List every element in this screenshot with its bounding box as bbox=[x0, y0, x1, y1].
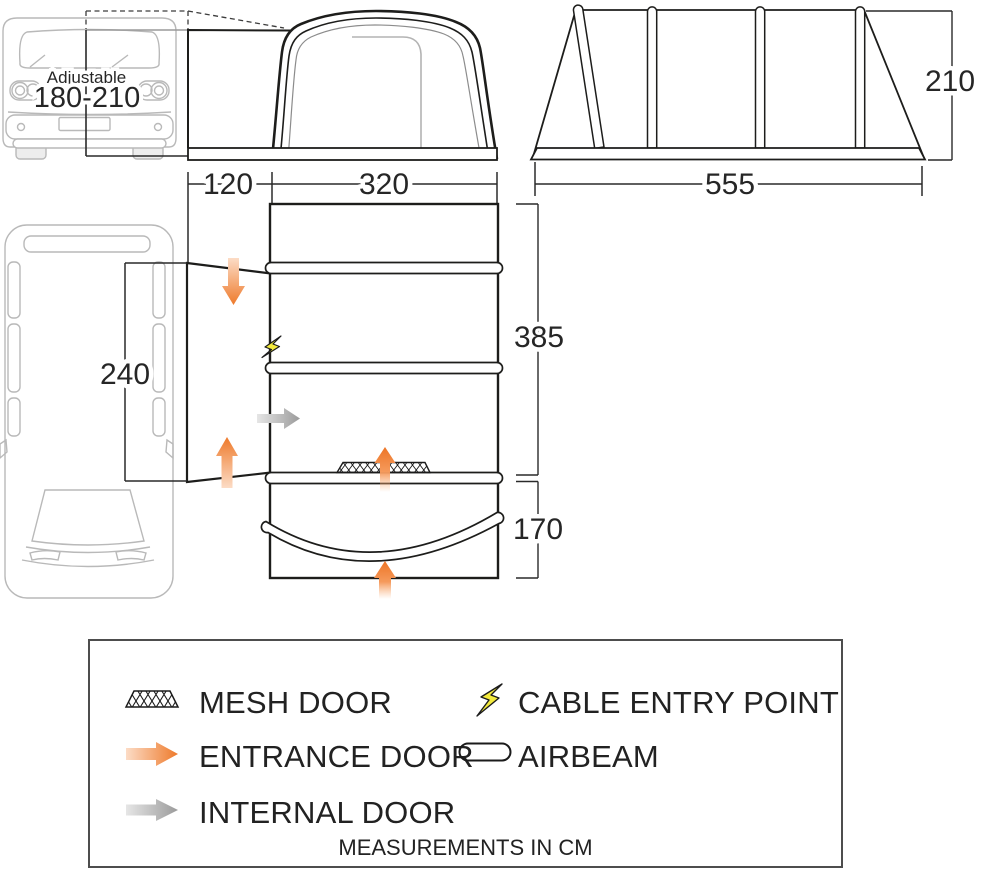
measurement-diagram-page: Adjustable 180-210 120 320 555 210 240 3… bbox=[0, 0, 1000, 875]
entrance-door-arrow-icon bbox=[126, 739, 178, 774]
side-ground-band bbox=[531, 148, 925, 160]
dim-side-length: 555 bbox=[705, 168, 755, 201]
adjustable-range-value: 180-210 bbox=[34, 82, 140, 114]
cowl-projection-dashes bbox=[86, 11, 284, 29]
airbeam-icon bbox=[458, 742, 512, 767]
van-top-view bbox=[0, 225, 173, 598]
internal-door-arrow-icon bbox=[126, 796, 178, 829]
awning-side-view bbox=[531, 5, 925, 159]
legend-label-entrance-door: ENTRANCE DOOR bbox=[199, 739, 474, 775]
dim-main-depth: 385 bbox=[514, 321, 564, 354]
dim-tunnel-width: 120 bbox=[203, 168, 253, 201]
dim-van-side: 240 bbox=[100, 358, 150, 391]
awning-front-view bbox=[188, 11, 497, 160]
dim-rear-height: 210 bbox=[925, 65, 975, 98]
legend-label-airbeam: AIRBEAM bbox=[518, 739, 659, 775]
awning-floor-plan bbox=[270, 204, 498, 578]
front-door-outline bbox=[352, 37, 421, 150]
cable-entry-point-icon bbox=[475, 683, 505, 722]
legend-label-cable-entry: CABLE ENTRY POINT bbox=[518, 685, 839, 721]
front-ground-band bbox=[188, 148, 497, 160]
awning-plan-view bbox=[187, 204, 504, 599]
measurements-unit-note: MEASUREMENTS IN CM bbox=[90, 835, 841, 861]
legend-box: MESH DOOR ENTRANCE DOOR INTERNAL DOOR CA… bbox=[88, 639, 843, 868]
dim-front-width: 320 bbox=[359, 168, 409, 201]
dim-front-depth: 170 bbox=[513, 513, 563, 546]
side-airbeams bbox=[573, 5, 864, 148]
awning-dimension-diagram: Adjustable 180-210 120 320 555 210 240 3… bbox=[0, 0, 1000, 620]
legend-label-mesh-door: MESH DOOR bbox=[199, 685, 392, 721]
legend-label-internal-door: INTERNAL DOOR bbox=[199, 795, 455, 831]
mesh-door-icon bbox=[124, 688, 180, 714]
